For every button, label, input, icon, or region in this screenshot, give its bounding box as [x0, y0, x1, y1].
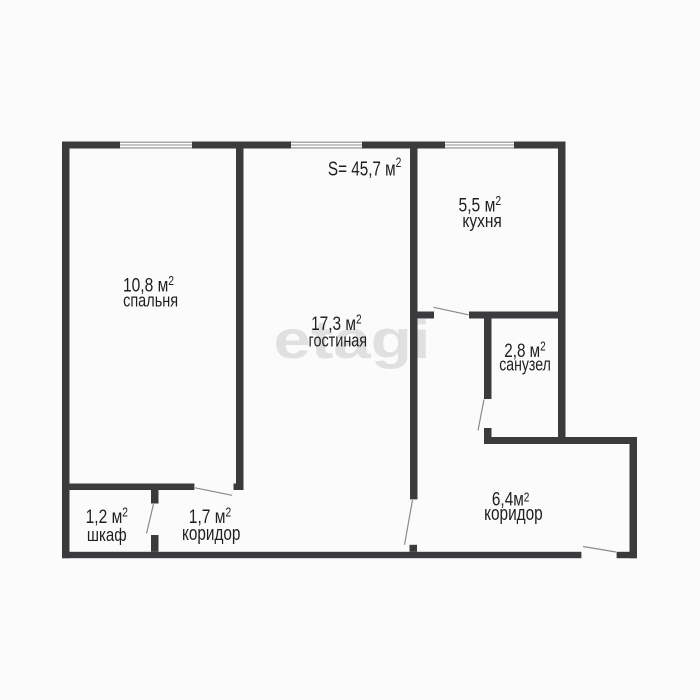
svg-text:коридор: коридор [182, 523, 240, 545]
svg-text:шкаф: шкаф [87, 525, 127, 545]
svg-text:гостиная: гостиная [309, 331, 368, 351]
svg-text:S= 45,7 м2: S= 45,7 м2 [328, 155, 402, 180]
svg-text:кухня: кухня [462, 211, 501, 231]
svg-text:коридор: коридор [484, 503, 543, 525]
svg-text:спальня: спальня [123, 290, 178, 310]
svg-text:санузел: санузел [499, 354, 551, 374]
